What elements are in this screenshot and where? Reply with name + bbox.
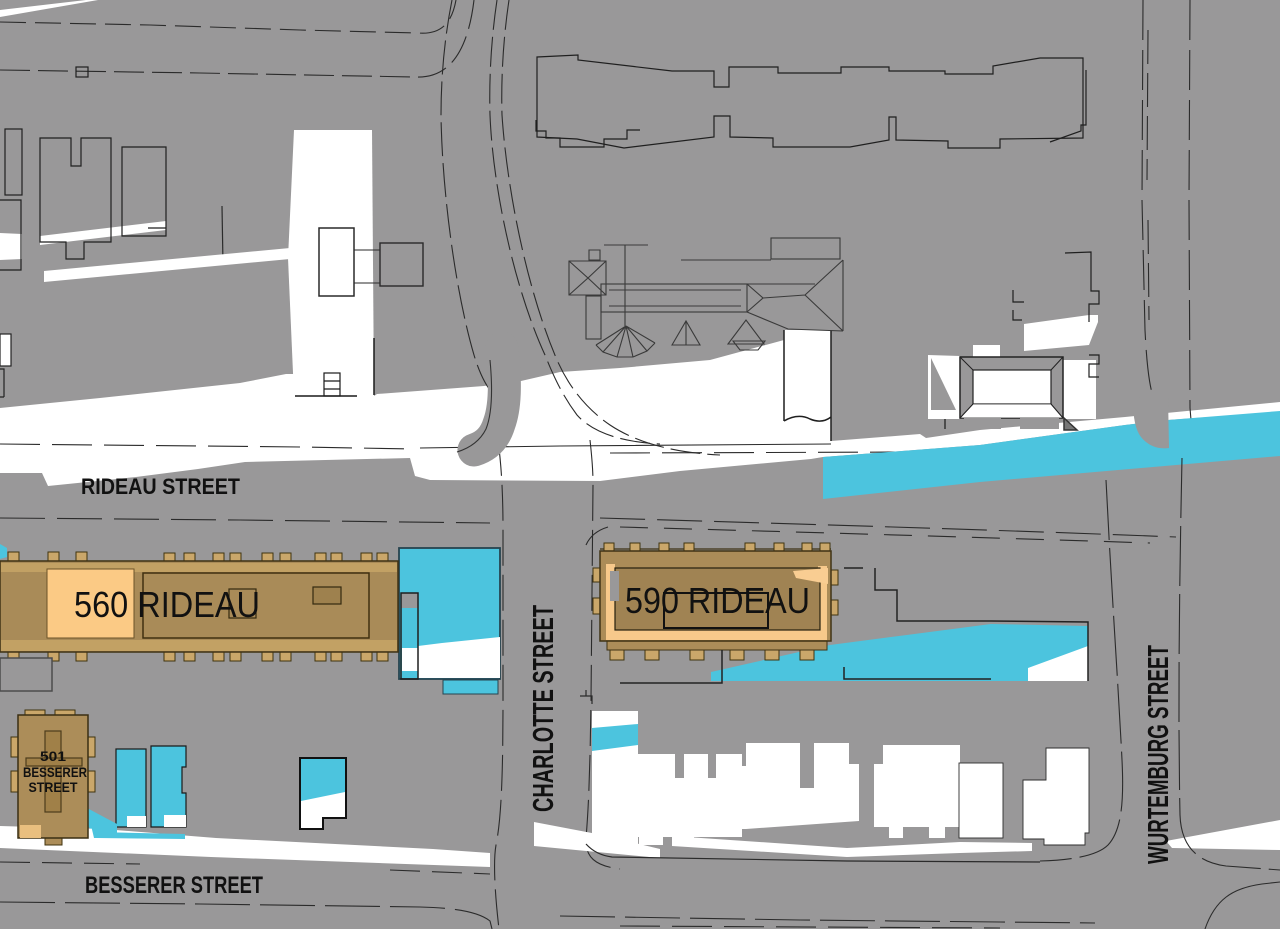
svg-text:WURTEMBURG STREET: WURTEMBURG STREET xyxy=(1143,645,1175,864)
svg-text:590 RIDEAU: 590 RIDEAU xyxy=(625,580,810,621)
svg-text:501: 501 xyxy=(40,748,66,764)
svg-text:RIDEAU STREET: RIDEAU STREET xyxy=(81,474,240,499)
svg-text:CHARLOTTE STREET: CHARLOTTE STREET xyxy=(528,605,560,812)
svg-text:BESSERER: BESSERER xyxy=(23,764,87,780)
svg-text:560 RIDEAU: 560 RIDEAU xyxy=(74,584,260,625)
svg-text:BESSERER STREET: BESSERER STREET xyxy=(85,872,263,899)
svg-text:STREET: STREET xyxy=(29,779,78,795)
